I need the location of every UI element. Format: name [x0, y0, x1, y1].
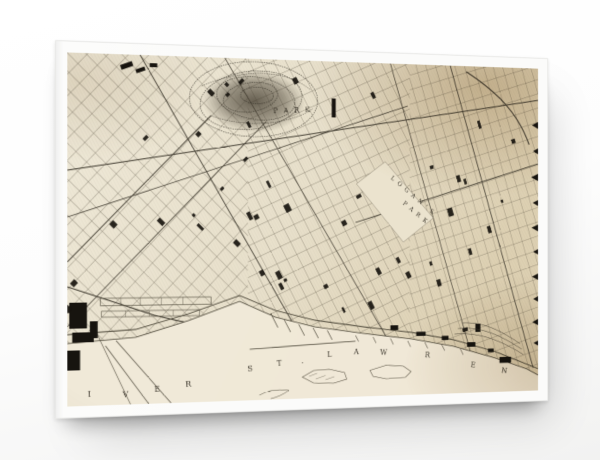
vintage-city-map-print: P A R KL O G A N ' SP A R KIVERST.LAWREN [67, 52, 538, 406]
river-letter-dot: . [301, 356, 303, 365]
river-letter-w: W [380, 348, 387, 357]
river-letter-a: A [353, 347, 359, 356]
white-gallery-frame: P A R KL O G A N ' SP A R KIVERST.LAWREN [55, 40, 548, 419]
river-letter-v: V [122, 390, 129, 400]
river-letter-s: S [247, 364, 253, 373]
photo-stage: P A R KL O G A N ' SP A R KIVERST.LAWREN [0, 0, 600, 460]
product-photo-scene: P A R KL O G A N ' SP A R KIVERST.LAWREN [0, 0, 600, 460]
river-letter-i: I [88, 390, 91, 399]
label-mount-royal-park: P A R K [273, 105, 312, 115]
river-letter-l: L [327, 350, 332, 359]
river-letter-e1: E [154, 384, 160, 394]
map-artwork: P A R KL O G A N ' SP A R KIVERST.LAWREN [67, 52, 538, 406]
